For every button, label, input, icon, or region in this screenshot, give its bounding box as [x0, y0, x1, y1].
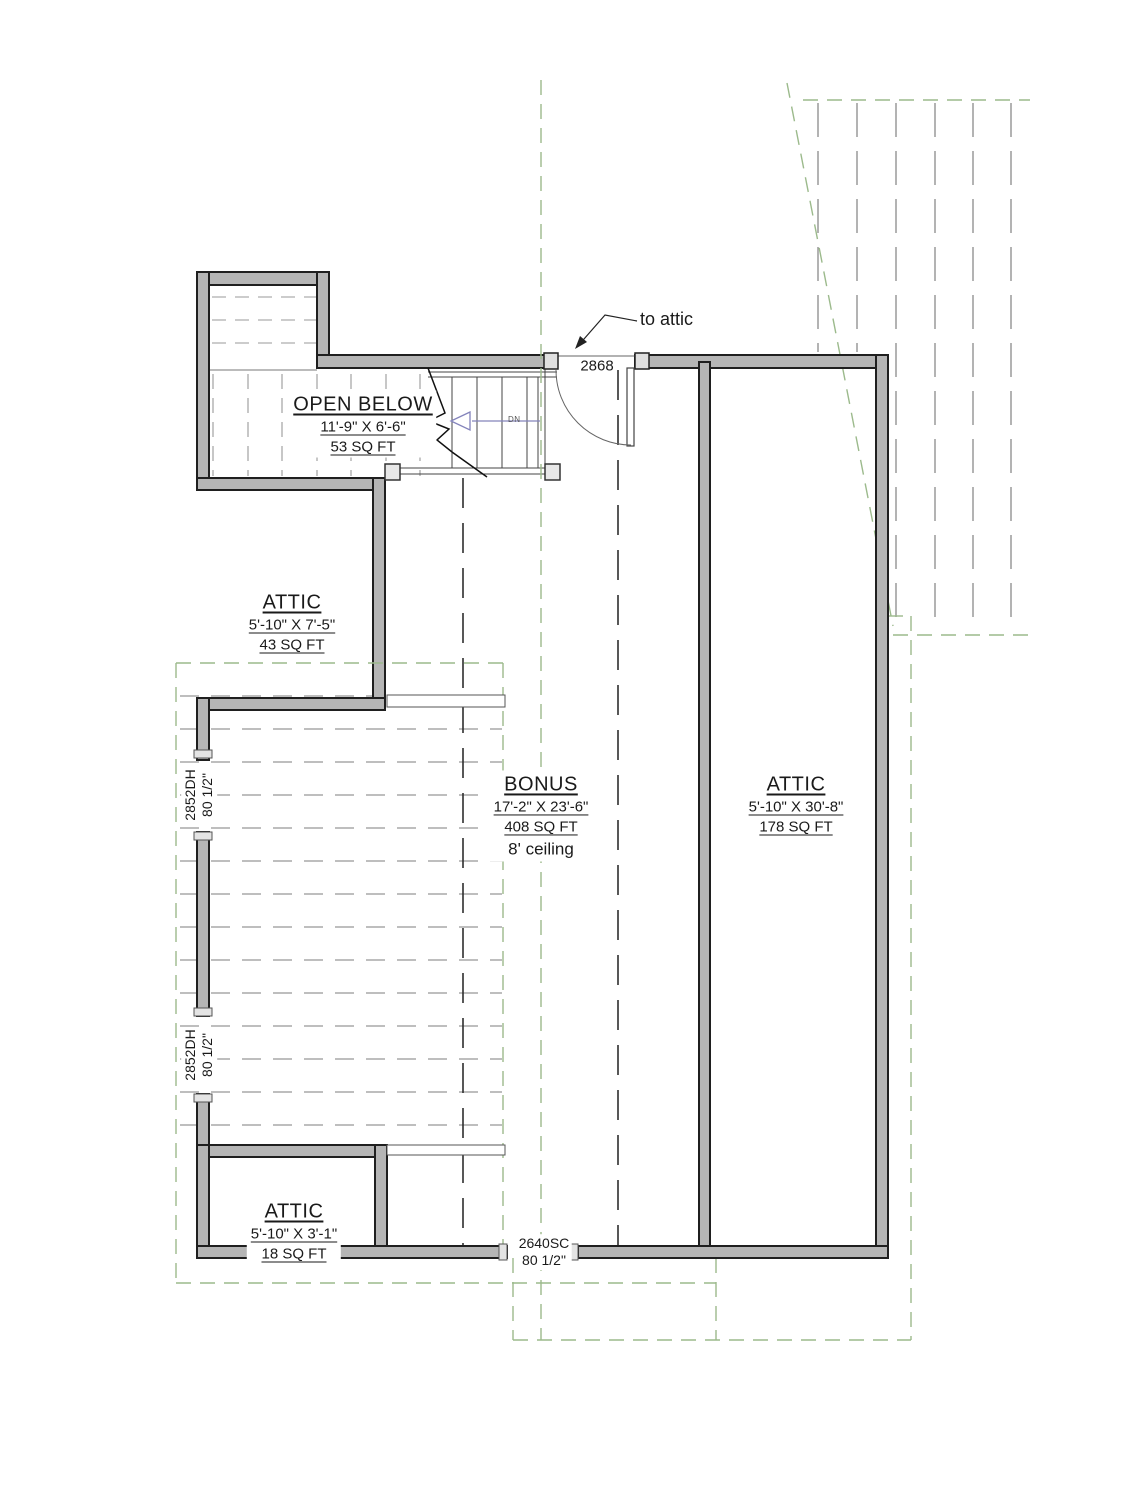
room-area: 178 SQ FT: [749, 817, 844, 837]
label-attic-upper-left: ATTIC 5'-10" X 7'-5" 43 SQ FT: [245, 589, 339, 656]
door-panel: [627, 368, 634, 446]
window-label-bottom: 2640SC 80 1/2": [517, 1234, 572, 1270]
window-model: 2852DH: [182, 1029, 199, 1080]
door-size-label: 2868: [578, 358, 615, 375]
to-attic-annotation: to attic: [640, 309, 693, 330]
room-dims: 11'-9" X 6'-6": [293, 418, 432, 438]
room-title: ATTIC: [749, 772, 844, 798]
room-dims: 17'-2" X 23'-6": [494, 797, 589, 817]
window-model: 2640SC: [519, 1235, 570, 1252]
window-sill: 80 1/2": [199, 769, 216, 820]
room-dims: 5'-10" X 7'-5": [249, 616, 335, 636]
floorplan-drawing: [0, 0, 1148, 1497]
knee-walls: [387, 695, 505, 1155]
room-area: 53 SQ FT: [293, 437, 432, 457]
label-open-below: OPEN BELOW 11'-9" X 6'-6" 53 SQ FT: [289, 391, 436, 458]
room-area: 43 SQ FT: [249, 635, 335, 655]
room-title: BONUS: [494, 771, 589, 797]
room-title: ATTIC: [249, 590, 335, 616]
to-attic-leader: [575, 315, 637, 349]
room-area: 18 SQ FT: [251, 1244, 337, 1264]
window-sill: 80 1/2": [519, 1252, 570, 1269]
room-ceiling: 8' ceiling: [494, 838, 589, 860]
window-label-left-upper: 2852DH 80 1/2": [181, 767, 217, 822]
door-jamb-left: [544, 353, 558, 369]
room-title: OPEN BELOW: [293, 392, 432, 418]
stair-dn-label: DN: [508, 415, 521, 424]
label-attic-right: ATTIC 5'-10" X 30'-8" 178 SQ FT: [745, 771, 848, 838]
window-label-left-lower: 2852DH 80 1/2": [181, 1027, 217, 1082]
low-ceiling-hatch-rows: [180, 696, 502, 1125]
floor-plan: OPEN BELOW 11'-9" X 6'-6" 53 SQ FT ATTIC…: [0, 0, 1148, 1497]
window-sill: 80 1/2": [199, 1029, 216, 1080]
room-title: ATTIC: [251, 1199, 337, 1225]
label-attic-lower-left: ATTIC 5'-10" X 3'-1" 18 SQ FT: [247, 1198, 341, 1265]
room-area: 408 SQ FT: [494, 817, 589, 837]
room-dims: 5'-10" X 30'-8": [749, 798, 844, 818]
room-dims: 5'-10" X 3'-1": [251, 1225, 337, 1245]
window-model: 2852DH: [182, 769, 199, 820]
label-bonus: BONUS 17'-2" X 23'-6" 408 SQ FT 8' ceili…: [490, 770, 593, 861]
upper-block-hatch-rows: [212, 297, 316, 343]
door-swing-arc: [556, 370, 631, 445]
door-jamb-right: [635, 353, 649, 369]
